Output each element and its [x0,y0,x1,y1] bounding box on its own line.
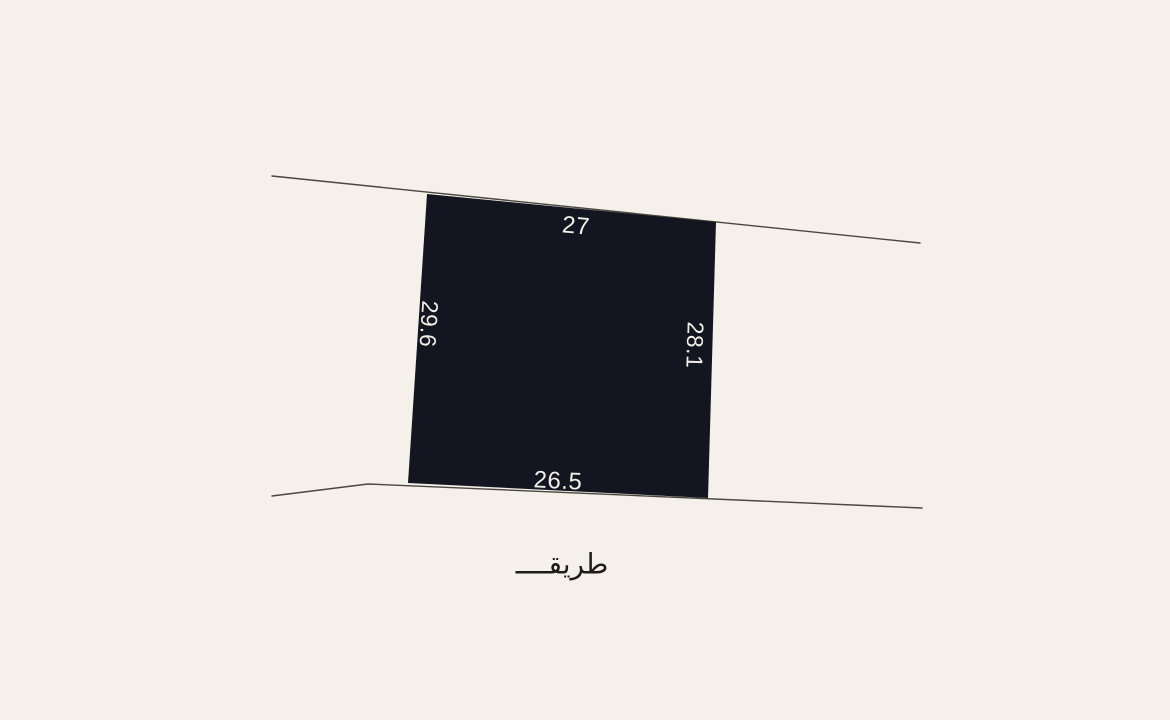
dimension-label-left: 29.6 [415,300,444,348]
dimension-label-top: 27 [561,211,591,240]
dimension-label-bottom: 26.5 [533,466,583,495]
road-label: طريقــــ [515,548,609,581]
dimension-label-right: 28.1 [681,321,708,369]
plot-survey-diagram: 27 29.6 28.1 26.5 طريقــــ [0,0,1170,720]
diagram-canvas: 27 29.6 28.1 26.5 طريقــــ [0,0,1170,720]
land-parcel-shape [408,194,716,498]
